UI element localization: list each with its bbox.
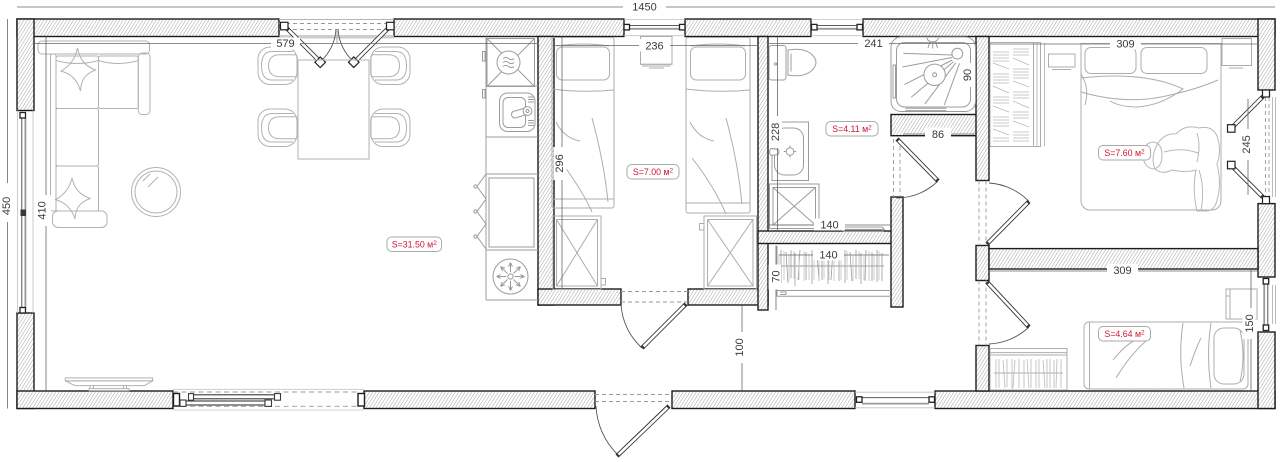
svg-text:241: 241: [864, 38, 882, 50]
svg-text:450: 450: [1, 197, 13, 215]
svg-text:228: 228: [770, 123, 782, 141]
svg-text:309: 309: [1116, 39, 1134, 51]
svg-text:309: 309: [1113, 265, 1131, 277]
svg-text:90: 90: [962, 69, 974, 81]
svg-text:100: 100: [734, 338, 746, 356]
svg-text:S=4.64 м2: S=4.64 м2: [1104, 329, 1145, 339]
svg-text:296: 296: [554, 154, 566, 172]
svg-text:150: 150: [1244, 314, 1256, 332]
svg-text:86: 86: [932, 129, 944, 141]
svg-text:579: 579: [276, 38, 294, 50]
svg-text:140: 140: [819, 250, 837, 262]
svg-text:236: 236: [645, 41, 663, 53]
svg-text:410: 410: [37, 201, 49, 219]
svg-text:245: 245: [1241, 135, 1253, 153]
svg-text:1450: 1450: [632, 2, 656, 14]
svg-text:S=4.11 м2: S=4.11 м2: [832, 124, 872, 134]
svg-text:S=31.50 м2: S=31.50 м2: [392, 240, 438, 250]
svg-text:S=7.00 м2: S=7.00 м2: [633, 167, 674, 177]
svg-text:140: 140: [820, 220, 838, 232]
svg-text:S=7.60 м2: S=7.60 м2: [1104, 148, 1145, 158]
svg-text:70: 70: [771, 270, 783, 282]
